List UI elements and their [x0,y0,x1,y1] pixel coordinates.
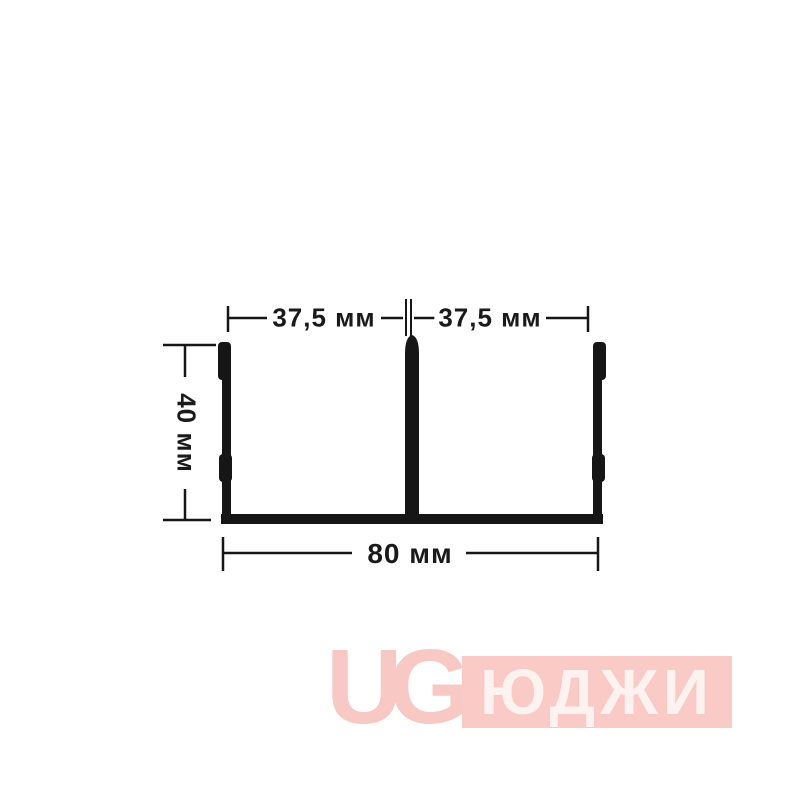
dim-label-top-left: 37,5 мм [268,303,379,334]
profile-left-notch [219,454,232,482]
dim-label-bottom: 80 мм [363,538,456,570]
profile-left-wall [222,368,231,518]
profile-right-lip [593,342,606,380]
profile-drawing-image: 37,5 мм 37,5 мм 40 мм 80 мм UG ЮДЖИ [0,0,800,800]
profile-drawing-svg [0,0,800,800]
profile-left-lip [218,342,231,380]
profile-center-stem [405,335,419,518]
profile-shape [218,335,606,524]
dim-label-top-right: 37,5 мм [434,303,545,334]
profile-right-notch [592,454,605,482]
dim-label-left: 40 мм [171,387,202,479]
profile-right-wall [593,368,602,518]
